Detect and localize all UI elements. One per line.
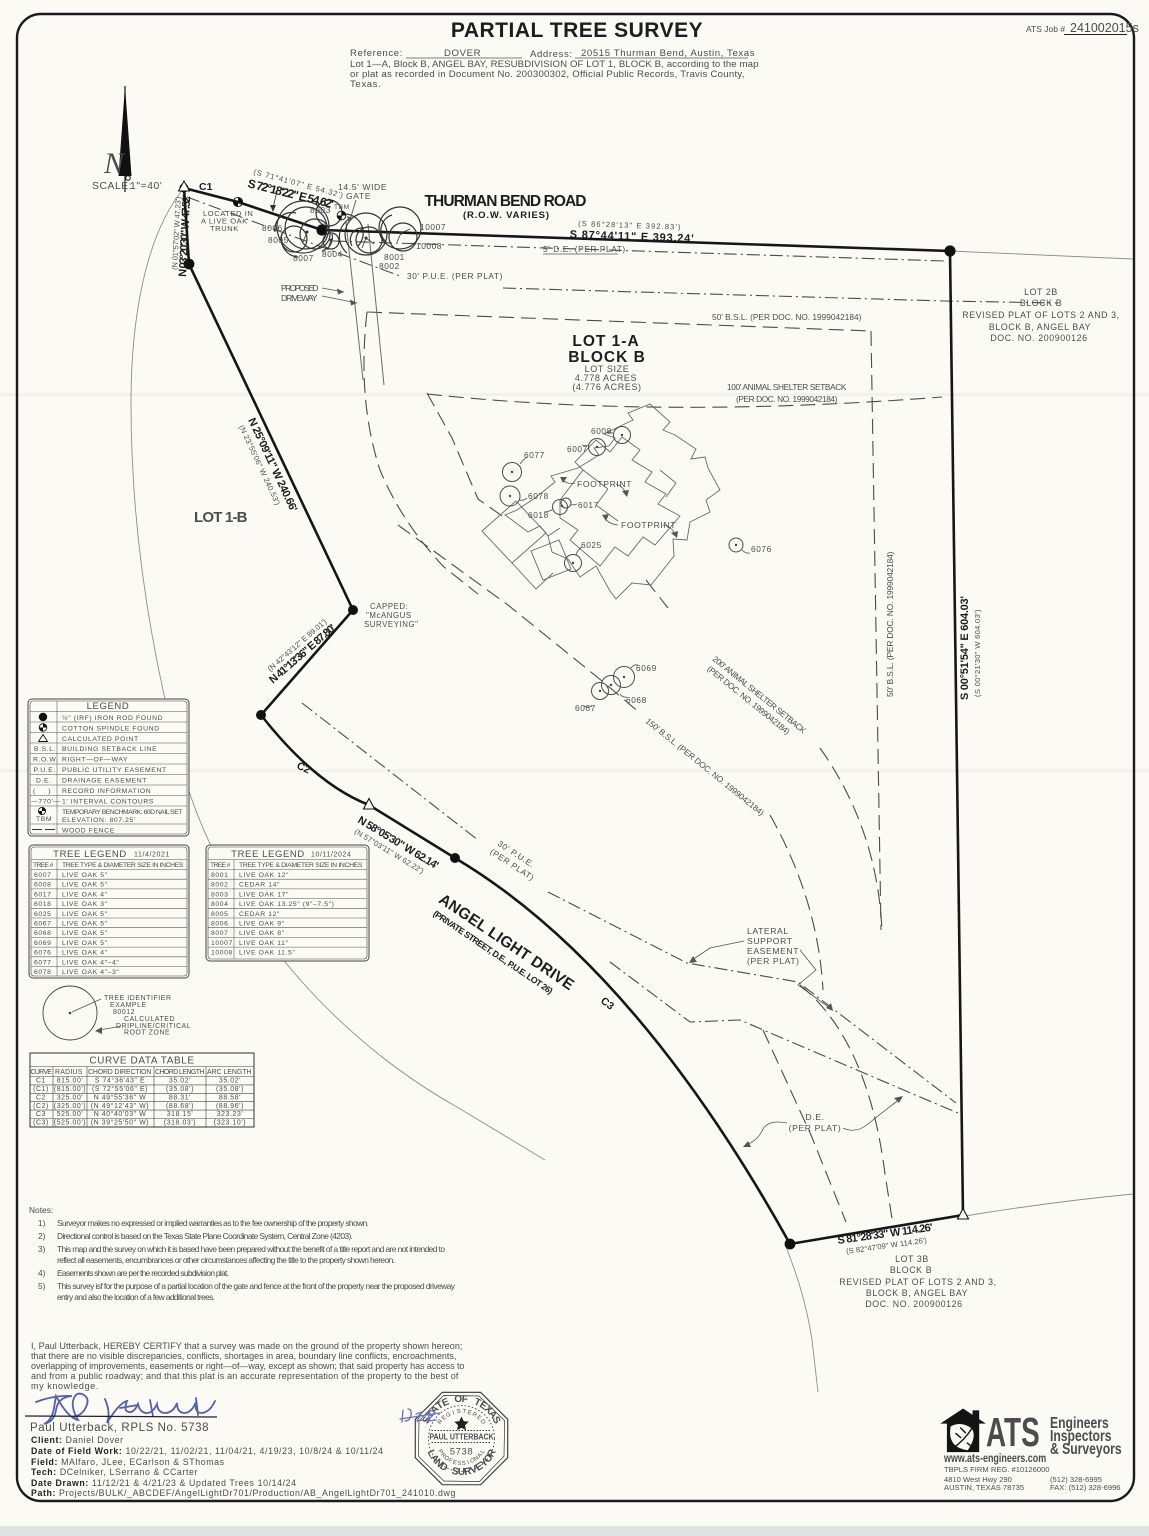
svg-text:Texas.: Texas. bbox=[350, 79, 381, 90]
svg-text:my knowledge.: my knowledge. bbox=[31, 1381, 99, 1391]
svg-text:(525.00'): (525.00') bbox=[54, 1120, 86, 1127]
svg-text:SCALE:: SCALE: bbox=[92, 181, 132, 192]
svg-text:SURVEYING": SURVEYING" bbox=[364, 620, 419, 629]
svg-text:LIVE OAK 8": LIVE OAK 8" bbox=[239, 930, 285, 937]
svg-text:35.02': 35.02' bbox=[219, 1078, 241, 1085]
svg-text:TREE TYPE & DIAMETER SIZE IN I: TREE TYPE & DIAMETER SIZE IN INCHES bbox=[239, 862, 363, 869]
svg-text:Date Drawn: 11/12/21 & 4/21/23: Date Drawn: 11/12/21 & 4/21/23 & Updated… bbox=[31, 1478, 297, 1488]
svg-text:318.15': 318.15' bbox=[167, 1111, 194, 1118]
svg-text:CURVE: CURVE bbox=[31, 1069, 53, 1076]
svg-text:CALCULATED POINT: CALCULATED POINT bbox=[62, 736, 139, 743]
svg-text:10007: 10007 bbox=[211, 940, 233, 947]
svg-text:WOOD FENCE: WOOD FENCE bbox=[62, 828, 115, 835]
svg-text:ATS: ATS bbox=[986, 1410, 1040, 1456]
svg-text:C1: C1 bbox=[199, 181, 213, 193]
svg-text:ROOT ZONE: ROOT ZONE bbox=[124, 1030, 170, 1037]
svg-text:N 40°40'03" W: N 40°40'03" W bbox=[94, 1110, 147, 1118]
svg-text:BLOCK B, ANGEL BAY: BLOCK B, ANGEL BAY bbox=[866, 1288, 968, 1298]
svg-text:6025: 6025 bbox=[34, 911, 52, 918]
svg-text:Paul Utterback, RPLS No. 5738: Paul Utterback, RPLS No. 5738 bbox=[30, 1422, 209, 1434]
svg-text:TBM: TBM bbox=[36, 816, 52, 823]
svg-text:TREE LEGEND: TREE LEGEND bbox=[231, 849, 305, 860]
svg-text:LOT 1-B: LOT 1-B bbox=[194, 509, 248, 526]
svg-text:Date of Field Work: 10/22/21,: Date of Field Work: 10/22/21, 11/02/21, … bbox=[31, 1446, 384, 1456]
svg-text:(815.00'): (815.00') bbox=[54, 1086, 86, 1093]
svg-text:8006: 8006 bbox=[262, 223, 283, 233]
svg-text:LIVE OAK 5": LIVE OAK 5" bbox=[62, 930, 108, 937]
svg-text:(S 72°55'06" E): (S 72°55'06" E) bbox=[92, 1085, 148, 1093]
svg-text:—770'—: —770'— bbox=[31, 799, 61, 806]
svg-text:REVISED PLAT OF LOTS 2 AND 3,: REVISED PLAT OF LOTS 2 AND 3, bbox=[839, 1277, 996, 1287]
svg-text:C1: C1 bbox=[36, 1078, 46, 1085]
svg-text:6069: 6069 bbox=[34, 940, 52, 947]
svg-text:6018: 6018 bbox=[528, 510, 549, 520]
svg-text:SUPPORT: SUPPORT bbox=[747, 936, 793, 946]
svg-text:50' B.S.L. (PER DOC. NO. 19990: 50' B.S.L. (PER DOC. NO. 1999042184) bbox=[885, 551, 895, 697]
svg-text:10/11/2024: 10/11/2024 bbox=[311, 852, 352, 859]
svg-text:(88.68'): (88.68') bbox=[166, 1103, 194, 1110]
svg-text:3): 3) bbox=[38, 1244, 46, 1254]
svg-text:GATE: GATE bbox=[346, 191, 371, 201]
svg-text:LIVE OAK 4"–4": LIVE OAK 4"–4" bbox=[62, 959, 119, 966]
svg-text:(C2): (C2) bbox=[33, 1103, 49, 1110]
svg-text:4): 4) bbox=[38, 1268, 46, 1278]
svg-text:Reference:: Reference: bbox=[350, 48, 403, 59]
svg-text:TREE #: TREE # bbox=[210, 862, 231, 869]
svg-text:EXAMPLE: EXAMPLE bbox=[110, 1002, 147, 1009]
svg-text:LIVE OAK 4": LIVE OAK 4" bbox=[62, 950, 108, 957]
svg-text:www.ats-engineers.com: www.ats-engineers.com bbox=[943, 1453, 1046, 1465]
svg-text:2): 2) bbox=[38, 1231, 46, 1241]
svg-text:6017: 6017 bbox=[34, 891, 52, 898]
svg-text:5738: 5738 bbox=[450, 1447, 474, 1458]
svg-text:6078: 6078 bbox=[528, 491, 549, 501]
svg-text:8003: 8003 bbox=[211, 891, 229, 898]
svg-text:BLOCK B, ANGEL BAY: BLOCK B, ANGEL BAY bbox=[989, 322, 1091, 332]
svg-text:"McANGUS: "McANGUS bbox=[366, 611, 412, 620]
svg-text:DRIVEWAY: DRIVEWAY bbox=[281, 293, 318, 303]
svg-text:6069: 6069 bbox=[636, 663, 657, 673]
svg-text:6067: 6067 bbox=[575, 703, 596, 713]
svg-text:10008: 10008 bbox=[416, 241, 442, 251]
svg-text:PARTIAL TREE SURVEY: PARTIAL TREE SURVEY bbox=[451, 19, 703, 42]
svg-text:Field: MAlfaro, JLee, ECarlson: Field: MAlfaro, JLee, ECarlson & SThomas bbox=[31, 1457, 225, 1467]
svg-text:8004: 8004 bbox=[211, 901, 229, 908]
svg-text:ARC LENGTH: ARC LENGTH bbox=[207, 1069, 252, 1076]
svg-text:CEDAR 14": CEDAR 14" bbox=[239, 882, 280, 889]
svg-text:TBM: TBM bbox=[334, 204, 350, 211]
svg-text:1"=40': 1"=40' bbox=[130, 181, 162, 192]
svg-text:RADIUS: RADIUS bbox=[55, 1069, 83, 1076]
svg-text:6076: 6076 bbox=[34, 950, 52, 957]
svg-text:Path: Projects/BULK/_ABCDEF/An: Path: Projects/BULK/_ABCDEF/AngelLightDr… bbox=[31, 1488, 456, 1498]
svg-text:Easements shown are per the re: Easements shown are per the recorded sub… bbox=[57, 1268, 229, 1278]
svg-text:10007: 10007 bbox=[420, 222, 446, 232]
svg-text:I, Paul Utterback, HEREBY CERT: I, Paul Utterback, HEREBY CERTIFY that a… bbox=[31, 1341, 463, 1351]
svg-text:88.58': 88.58' bbox=[219, 1094, 241, 1101]
svg-text:8005: 8005 bbox=[268, 235, 289, 245]
svg-text:8007: 8007 bbox=[211, 930, 229, 937]
svg-text:LEGEND: LEGEND bbox=[87, 701, 130, 712]
svg-text:(PER PLAT): (PER PLAT) bbox=[789, 1123, 842, 1133]
svg-text:REVISED PLAT OF LOTS 2 AND 3,: REVISED PLAT OF LOTS 2 AND 3, bbox=[962, 310, 1119, 320]
svg-text:6007: 6007 bbox=[34, 872, 52, 879]
svg-text:RECORD INFORMATION: RECORD INFORMATION bbox=[62, 788, 151, 795]
svg-text:BUILDING SETBACK LINE: BUILDING SETBACK LINE bbox=[62, 746, 157, 753]
svg-text:AUSTIN, TEXAS 78735: AUSTIN, TEXAS 78735 bbox=[944, 1483, 1024, 1492]
svg-text:R.O.W.: R.O.W. bbox=[33, 757, 59, 764]
svg-text:11/4/2021: 11/4/2021 bbox=[134, 852, 170, 859]
svg-text:S: S bbox=[456, 1409, 461, 1415]
svg-text:6077: 6077 bbox=[524, 450, 545, 460]
svg-text:( ): ( ) bbox=[33, 788, 51, 795]
svg-text:10008: 10008 bbox=[211, 950, 233, 957]
svg-text:(N 39°25'50" W): (N 39°25'50" W) bbox=[91, 1119, 149, 1127]
svg-text:LIVE OAK 4": LIVE OAK 4" bbox=[62, 891, 108, 898]
svg-text:C3: C3 bbox=[36, 1111, 46, 1118]
svg-text:Tech: DCelniker, LSerrano & CC: Tech: DCelniker, LSerrano & CCarter bbox=[31, 1467, 198, 1477]
svg-text:This map and the survey on whi: This map and the survey on which it is b… bbox=[57, 1244, 445, 1254]
svg-text:(PER PLAT): (PER PLAT) bbox=[747, 956, 800, 966]
svg-text:F: F bbox=[461, 1394, 468, 1405]
svg-text:LIVE OAK 5": LIVE OAK 5" bbox=[62, 921, 108, 928]
svg-text:TREE TYPE & DIAMETER SIZE IN I: TREE TYPE & DIAMETER SIZE IN INCHES bbox=[62, 862, 184, 869]
svg-text:80012: 80012 bbox=[113, 1009, 135, 1016]
svg-text:6008: 6008 bbox=[34, 882, 52, 889]
svg-text:LIVE OAK 9": LIVE OAK 9" bbox=[239, 921, 285, 928]
svg-text:(PER DOC. NO. 1999042184): (PER DOC. NO. 1999042184) bbox=[736, 394, 838, 404]
svg-text:6068: 6068 bbox=[34, 930, 52, 937]
svg-text:6078: 6078 bbox=[34, 969, 52, 976]
svg-text:6076: 6076 bbox=[751, 544, 772, 554]
svg-text:N 49°55'36" W: N 49°55'36" W bbox=[94, 1093, 147, 1101]
svg-text:6008: 6008 bbox=[591, 426, 612, 436]
svg-text:(C1): (C1) bbox=[33, 1086, 49, 1093]
svg-text:(N 49°12'43" W): (N 49°12'43" W) bbox=[91, 1102, 149, 1110]
svg-text:COTTON SPINDLE FOUND: COTTON SPINDLE FOUND bbox=[62, 726, 160, 733]
svg-text:LIVE OAK 5": LIVE OAK 5" bbox=[62, 940, 108, 947]
svg-text:FAX: (512) 328-6996: FAX: (512) 328-6996 bbox=[1050, 1483, 1121, 1492]
svg-text:6068: 6068 bbox=[626, 695, 647, 705]
svg-text:20515 Thurman Bend, Austin, Te: 20515 Thurman Bend, Austin, Texas bbox=[581, 48, 755, 59]
svg-text:DOC. NO. 200900126: DOC. NO. 200900126 bbox=[865, 1299, 962, 1309]
svg-text:TEMPORARY BENCHMARK: 60D NAIL: TEMPORARY BENCHMARK: 60D NAIL SET bbox=[62, 809, 183, 816]
svg-text:6077: 6077 bbox=[34, 959, 52, 966]
svg-text:CHORD DIRECTION: CHORD DIRECTION bbox=[88, 1069, 152, 1076]
svg-text:PAUL UTTERBACK: PAUL UTTERBACK bbox=[429, 1432, 494, 1442]
svg-text:B.S.L.: B.S.L. bbox=[34, 746, 56, 753]
svg-text:8007: 8007 bbox=[293, 253, 314, 263]
svg-text:LIVE OAK 11.5": LIVE OAK 11.5" bbox=[239, 950, 295, 957]
svg-text:(C3): (C3) bbox=[33, 1120, 49, 1127]
svg-text:8002: 8002 bbox=[379, 261, 400, 271]
svg-text:THURMAN BEND ROAD: THURMAN BEND ROAD bbox=[425, 193, 588, 210]
svg-text:(R.O.W. VARIES): (R.O.W. VARIES) bbox=[463, 210, 549, 221]
svg-text:Directional control is based o: Directional control is based on the Texa… bbox=[57, 1231, 353, 1241]
svg-text:LOT 2B: LOT 2B bbox=[1024, 287, 1058, 297]
svg-text:D.E.: D.E. bbox=[36, 778, 52, 785]
svg-text:P.U.E.: P.U.E. bbox=[34, 767, 56, 774]
svg-text:PUBLIC UTILITY EASEMENT: PUBLIC UTILITY EASEMENT bbox=[62, 767, 167, 774]
svg-text:(S 00°21'30" W 604.03'): (S 00°21'30" W 604.03') bbox=[973, 609, 982, 697]
svg-text:S 74°36'43" E: S 74°36'43" E bbox=[95, 1077, 145, 1085]
svg-text:FOOTPRINT: FOOTPRINT bbox=[577, 479, 632, 489]
svg-text:LIVE OAK 17": LIVE OAK 17" bbox=[239, 891, 289, 898]
svg-text:Notes:: Notes: bbox=[29, 1205, 53, 1215]
svg-text:overlapping of improvements, e: overlapping of improvements, easements o… bbox=[31, 1361, 465, 1371]
svg-text:ELEVATION: 807.25': ELEVATION: 807.25' bbox=[62, 817, 136, 824]
svg-text:CEDAR 12": CEDAR 12" bbox=[239, 911, 280, 918]
svg-text:LOT 3B: LOT 3B bbox=[895, 1254, 929, 1264]
svg-text:(318.03'): (318.03') bbox=[164, 1120, 196, 1127]
svg-text:CALCULATED: CALCULATED bbox=[124, 1016, 175, 1023]
svg-text:LOT 1-A: LOT 1-A bbox=[572, 333, 639, 350]
svg-text:241002015s: 241002015s bbox=[1070, 21, 1139, 35]
svg-text:TREE IDENTIFIER: TREE IDENTIFIER bbox=[104, 995, 172, 1002]
svg-text:6018: 6018 bbox=[34, 901, 52, 908]
svg-text:5' D.E. (PER PLAT): 5' D.E. (PER PLAT) bbox=[543, 244, 626, 254]
svg-text:and from a public roadway; and: and from a public roadway; and that this… bbox=[31, 1371, 459, 1381]
svg-text:(325.00'): (325.00') bbox=[54, 1103, 86, 1110]
svg-text:6007: 6007 bbox=[567, 444, 588, 454]
svg-text:30' P.U.E. (PER PLAT): 30' P.U.E. (PER PLAT) bbox=[407, 271, 503, 281]
svg-text:TREE #: TREE # bbox=[33, 862, 54, 869]
svg-text:DOVER: DOVER bbox=[444, 48, 481, 59]
svg-text:LIVE OAK 5": LIVE OAK 5" bbox=[62, 911, 108, 918]
svg-text:that there are no visible disc: that there are no visible discrepancies,… bbox=[31, 1351, 457, 1361]
svg-text:N: N bbox=[103, 147, 126, 180]
svg-text:CHORD LENGTH: CHORD LENGTH bbox=[155, 1069, 205, 1076]
svg-text:D.E.: D.E. bbox=[805, 1112, 824, 1122]
svg-text:1): 1) bbox=[38, 1218, 46, 1228]
svg-text:TBPLS FIRM REG. #10126000: TBPLS FIRM REG. #10126000 bbox=[944, 1465, 1050, 1474]
svg-text:C2: C2 bbox=[36, 1094, 46, 1101]
svg-text:(35.08'): (35.08') bbox=[216, 1086, 244, 1093]
svg-text:BLOCK B: BLOCK B bbox=[890, 1265, 932, 1275]
svg-text:ATS Job #: ATS Job # bbox=[1026, 24, 1065, 34]
svg-text:8004: 8004 bbox=[322, 249, 343, 259]
svg-text:6067: 6067 bbox=[34, 921, 52, 928]
svg-text:CURVE DATA TABLE: CURVE DATA TABLE bbox=[89, 1056, 194, 1067]
svg-text:8005: 8005 bbox=[211, 911, 229, 918]
svg-text:Client: Daniel Dover: Client: Daniel Dover bbox=[31, 1435, 124, 1445]
svg-text:8006: 8006 bbox=[211, 921, 229, 928]
svg-text:Surveyor makes no expressed or: Surveyor makes no expressed or implied w… bbox=[57, 1218, 369, 1228]
svg-text:DRAINAGE EASEMENT: DRAINAGE EASEMENT bbox=[62, 778, 147, 785]
svg-text:LIVE OAK 5": LIVE OAK 5" bbox=[62, 882, 108, 889]
svg-text:100' ANIMAL SHELTER SETBACK: 100' ANIMAL SHELTER SETBACK bbox=[727, 382, 847, 392]
svg-text:BLOCK B: BLOCK B bbox=[1020, 298, 1062, 308]
svg-text:or plat as recorded in Documen: or plat as recorded in Document No. 2003… bbox=[350, 69, 745, 80]
svg-text:6017: 6017 bbox=[578, 500, 599, 510]
svg-text:323.23': 323.23' bbox=[217, 1111, 244, 1118]
svg-text:LIVE OAK 4"–3": LIVE OAK 4"–3" bbox=[62, 969, 119, 976]
svg-text:6025: 6025 bbox=[581, 540, 602, 550]
svg-text:reflect all easements, encumbr: reflect all easements, encumbrances or o… bbox=[57, 1255, 395, 1265]
svg-text:TREE LEGEND: TREE LEGEND bbox=[53, 849, 127, 860]
svg-text:S 00°51'54" E 604.03': S 00°51'54" E 604.03' bbox=[959, 596, 971, 700]
svg-text:LIVE OAK 12": LIVE OAK 12" bbox=[239, 872, 289, 879]
svg-text:88.31': 88.31' bbox=[169, 1094, 191, 1101]
svg-text:(4.776 ACRES): (4.776 ACRES) bbox=[572, 382, 641, 392]
svg-text:50' B.S.L. (PER DOC. NO. 19990: 50' B.S.L. (PER DOC. NO. 1999042184) bbox=[712, 312, 862, 322]
svg-text:(88.96'): (88.96') bbox=[216, 1103, 244, 1110]
svg-text:1' INTERVAL CONTOURS: 1' INTERVAL CONTOURS bbox=[62, 799, 154, 806]
svg-text:entry and also the location of: entry and also the location of a few add… bbox=[57, 1292, 215, 1302]
svg-text:8001: 8001 bbox=[211, 872, 229, 879]
svg-text:LIVE OAK 3": LIVE OAK 3" bbox=[62, 901, 108, 908]
svg-text:5): 5) bbox=[38, 1281, 46, 1291]
svg-text:525.00': 525.00' bbox=[57, 1111, 84, 1118]
svg-text:LATERAL: LATERAL bbox=[747, 926, 789, 936]
svg-text:RIGHT—OF—WAY: RIGHT—OF—WAY bbox=[62, 757, 128, 764]
svg-text:TRUNK: TRUNK bbox=[210, 224, 239, 233]
svg-text:35.02': 35.02' bbox=[169, 1078, 191, 1085]
svg-text:EASEMENT: EASEMENT bbox=[747, 946, 799, 956]
svg-text:FOOTPRINT: FOOTPRINT bbox=[621, 520, 676, 530]
svg-text:S: S bbox=[462, 1461, 467, 1467]
svg-text:½" (IRF) IRON ROD FOUND: ½" (IRF) IRON ROD FOUND bbox=[62, 714, 163, 722]
svg-text:8002: 8002 bbox=[211, 882, 229, 889]
svg-text:DOC. NO. 200900126: DOC. NO. 200900126 bbox=[990, 333, 1087, 343]
svg-text:& Surveyors: & Surveyors bbox=[1050, 1440, 1122, 1458]
svg-text:815.00': 815.00' bbox=[57, 1078, 84, 1085]
svg-text:CAPPED:: CAPPED: bbox=[370, 602, 408, 611]
svg-text:(35.08'): (35.08') bbox=[166, 1086, 194, 1093]
svg-text:LIVE OAK 11": LIVE OAK 11" bbox=[239, 940, 289, 947]
svg-text:(323.10'): (323.10') bbox=[214, 1120, 246, 1127]
svg-text:LIVE OAK 13.25" (9"–7.5"): LIVE OAK 13.25" (9"–7.5") bbox=[239, 901, 335, 908]
svg-text:This survey isf for the purpos: This survey isf for the purpose of a par… bbox=[57, 1281, 456, 1291]
svg-text:LIVE OAK 5": LIVE OAK 5" bbox=[62, 872, 108, 879]
svg-text:PROPOSED: PROPOSED bbox=[281, 283, 319, 293]
svg-text:325.00': 325.00' bbox=[57, 1094, 84, 1101]
